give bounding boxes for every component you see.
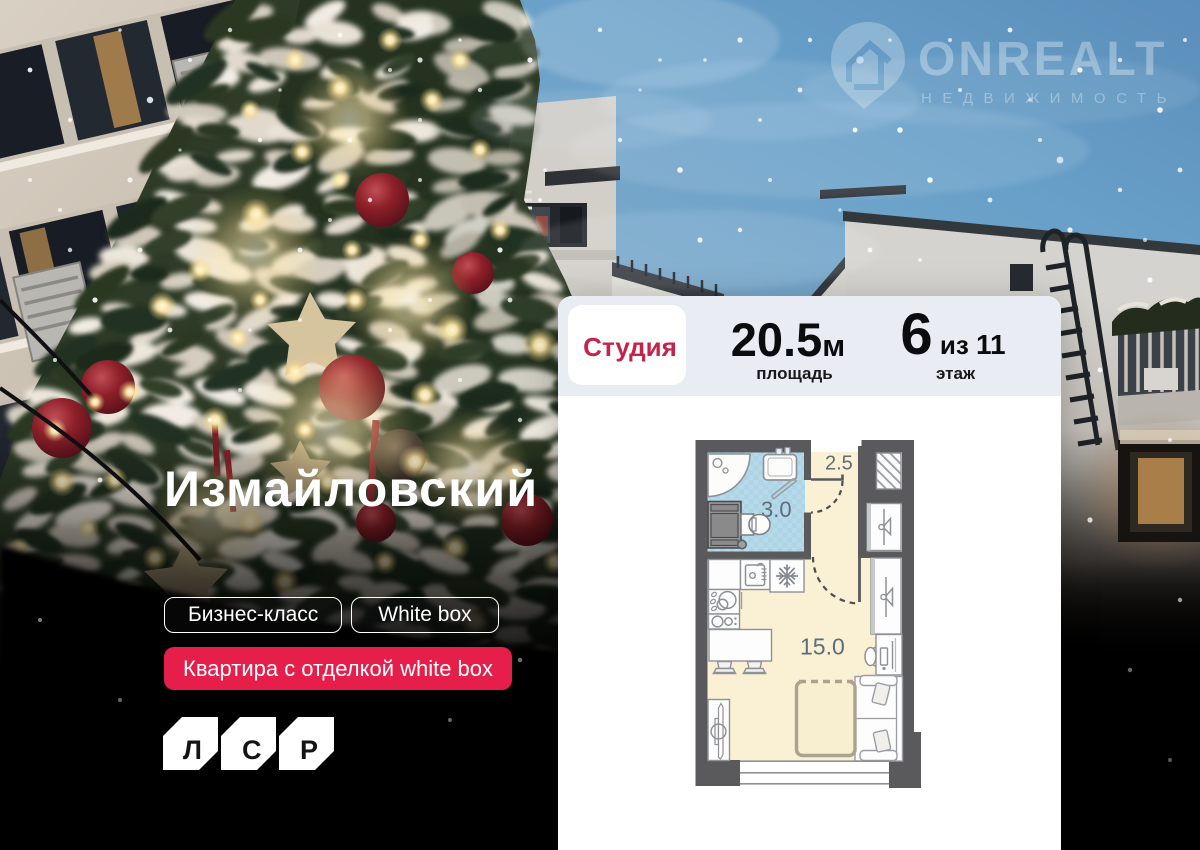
svg-text:Л: Л <box>183 735 202 765</box>
svg-text:2.5: 2.5 <box>825 453 853 475</box>
svg-text:15.0: 15.0 <box>800 634 845 660</box>
svg-text:С: С <box>242 735 262 765</box>
svg-text:Р: Р <box>300 735 318 765</box>
